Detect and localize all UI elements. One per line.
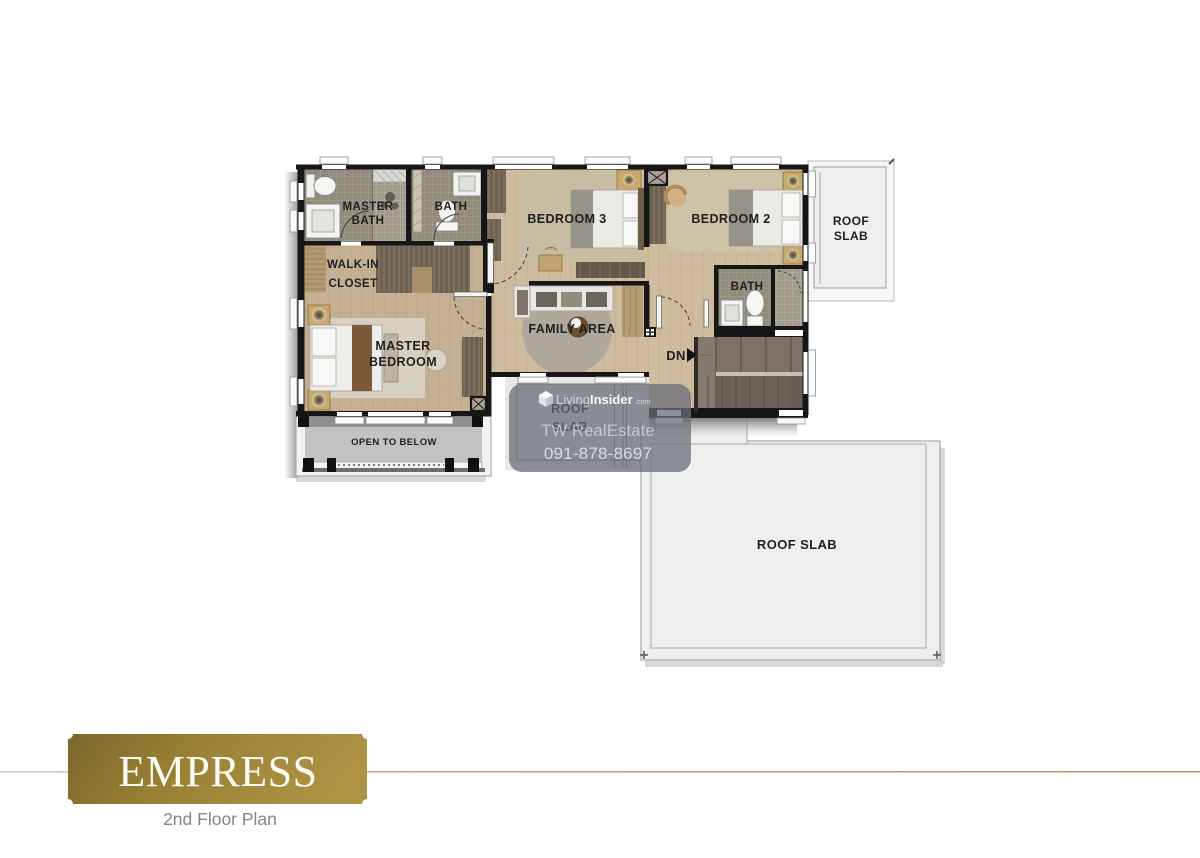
svg-text:BATH: BATH (731, 281, 764, 293)
svg-text:Insider: Insider (590, 392, 633, 407)
svg-text:SLAB: SLAB (834, 229, 868, 243)
svg-text:BEDROOM: BEDROOM (369, 355, 437, 369)
svg-text:EMPRESS: EMPRESS (118, 747, 317, 796)
svg-text:MASTER: MASTER (375, 339, 430, 353)
svg-text:CLOSET: CLOSET (328, 278, 377, 290)
svg-text:OPEN TO BELOW: OPEN TO BELOW (351, 437, 437, 448)
svg-text:WALK-IN: WALK-IN (327, 259, 379, 271)
svg-text:BATH: BATH (435, 201, 468, 213)
svg-text:BEDROOM 3: BEDROOM 3 (527, 212, 606, 226)
svg-text:TW RealEstate: TW RealEstate (541, 422, 655, 440)
svg-text:DN: DN (666, 348, 686, 363)
svg-text:.com: .com (635, 399, 650, 406)
svg-text:BEDROOM 2: BEDROOM 2 (691, 212, 770, 226)
svg-text:MASTER: MASTER (343, 201, 394, 213)
svg-text:BATH: BATH (352, 215, 385, 227)
svg-text:ROOF: ROOF (833, 214, 869, 228)
svg-text:2nd Floor Plan: 2nd Floor Plan (163, 809, 277, 829)
svg-text:ROOF SLAB: ROOF SLAB (757, 537, 837, 552)
svg-text:Living: Living (556, 392, 590, 407)
svg-text:FAMILY AREA: FAMILY AREA (528, 322, 615, 336)
svg-text:091-878-8697: 091-878-8697 (544, 444, 652, 463)
